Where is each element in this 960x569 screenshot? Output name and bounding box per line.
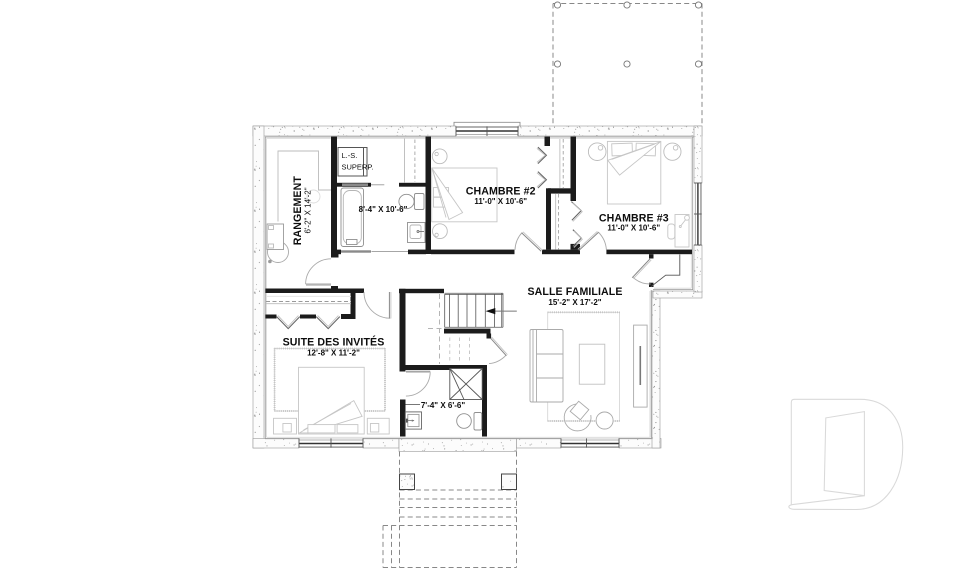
svg-text:6'-2" X 14'-2": 6'-2" X 14'-2" <box>303 187 312 233</box>
svg-text:11'-0" X 10'-6": 11'-0" X 10'-6" <box>474 197 527 206</box>
svg-text:CHAMBRE #2: CHAMBRE #2 <box>466 185 536 197</box>
svg-text:11'-0" X 10'-6": 11'-0" X 10'-6" <box>607 224 660 233</box>
svg-text:8'-4" X 10'-6": 8'-4" X 10'-6" <box>359 205 408 214</box>
svg-text:SALLE FAMILIALE: SALLE FAMILIALE <box>527 286 622 298</box>
svg-text:12'-8" X 11'-2": 12'-8" X 11'-2" <box>307 349 360 358</box>
svg-text:15'-2" X 17'-2": 15'-2" X 17'-2" <box>548 298 601 307</box>
svg-text:SUITE DES INVITÉS: SUITE DES INVITÉS <box>283 336 385 349</box>
svg-text:L.-S.: L.-S. <box>342 151 358 160</box>
svg-text:SUPERP.: SUPERP. <box>342 162 374 171</box>
svg-text:CHAMBRE #3: CHAMBRE #3 <box>599 212 669 224</box>
svg-text:7'-4" X 6'-6": 7'-4" X 6'-6" <box>421 401 466 410</box>
svg-text:RANGEMENT: RANGEMENT <box>292 176 304 246</box>
